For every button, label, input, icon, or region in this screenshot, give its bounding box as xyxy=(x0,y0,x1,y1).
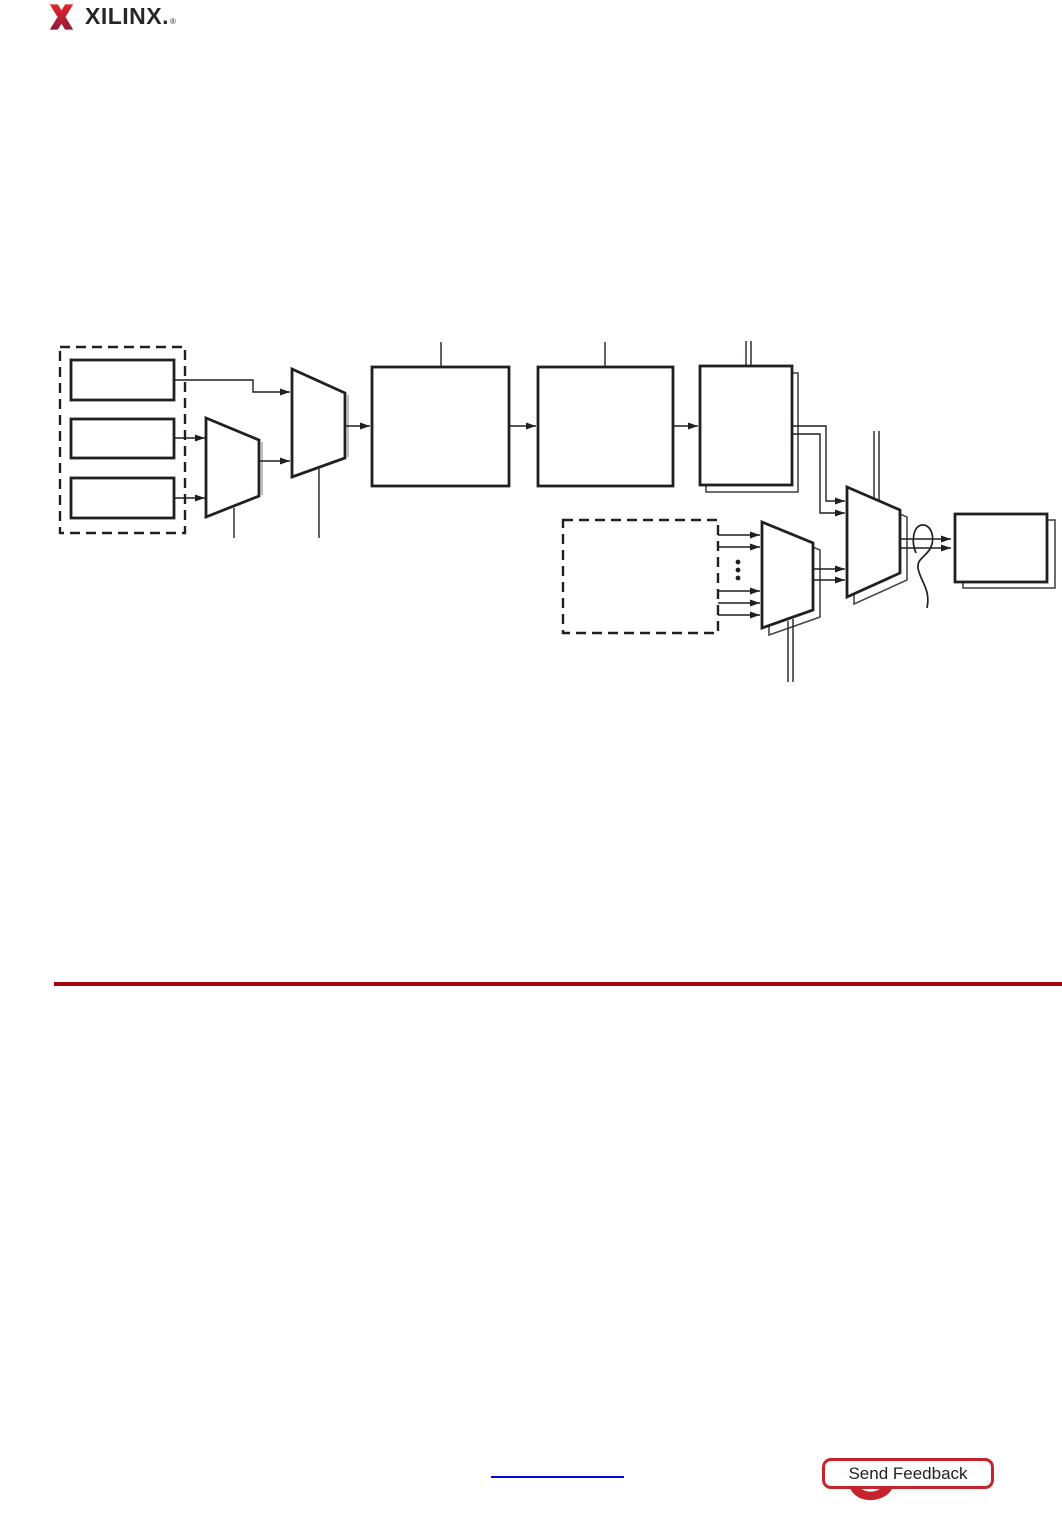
ellipsis-dot-2 xyxy=(736,568,741,573)
ellipsis-dot-1 xyxy=(736,560,741,565)
footer-link-underline[interactable] xyxy=(491,1476,624,1478)
block-diagram-figure xyxy=(0,0,1062,1516)
result-block xyxy=(955,514,1047,582)
input-register-3 xyxy=(71,478,174,518)
input-register-1 xyxy=(71,360,174,400)
dashed-option-group xyxy=(563,520,718,633)
ellipsis-dot-3 xyxy=(736,576,741,581)
select-mux xyxy=(292,369,345,477)
process-block-1 xyxy=(372,367,509,486)
option-mux xyxy=(762,522,813,628)
wire-bundle-loop-icon xyxy=(913,525,932,608)
footer-divider-rule xyxy=(54,982,1062,986)
process-block-3 xyxy=(700,366,792,485)
send-feedback-button[interactable]: Send Feedback xyxy=(822,1458,994,1489)
process-block-2 xyxy=(538,367,673,486)
send-feedback-label: Send Feedback xyxy=(848,1464,967,1484)
input-mux xyxy=(206,418,259,517)
wire-reg1-to-mux2 xyxy=(174,380,290,392)
input-register-2 xyxy=(71,419,174,458)
wire-block3-out-a xyxy=(792,426,845,501)
